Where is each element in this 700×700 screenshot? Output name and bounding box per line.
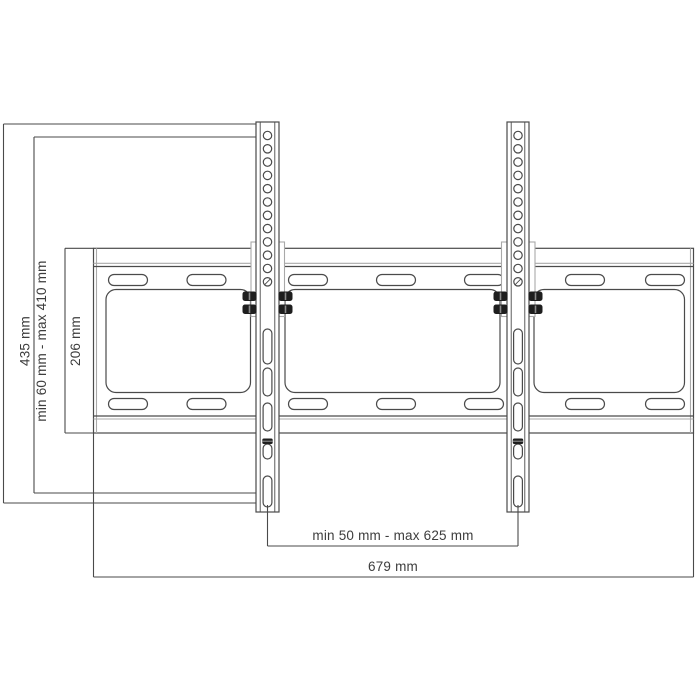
rail-hole (514, 131, 522, 139)
rail-hole (263, 224, 271, 232)
rail-hole (514, 238, 522, 246)
rail-slot (514, 444, 523, 459)
plate-slot (465, 275, 504, 286)
bracket-height-range-label: min 60 mm - max 410 mm (34, 260, 49, 421)
dimension-overall-width: 679 mm (94, 433, 694, 577)
rail-hole (263, 185, 271, 193)
rail-slot (514, 476, 523, 507)
plate-slot (187, 275, 226, 286)
plate-height-label: 206 mm (68, 316, 83, 366)
rail-hole (263, 145, 271, 153)
rail-slot (514, 403, 523, 431)
plate-slot (377, 275, 416, 286)
plate-slot (289, 275, 328, 286)
plate-slot (566, 275, 605, 286)
plate-slot (109, 275, 148, 286)
rail-hole (514, 251, 522, 259)
plate-slot (646, 275, 685, 286)
rail-slot (514, 368, 523, 396)
plate-slot (109, 399, 148, 410)
plate-slot (289, 399, 328, 410)
plate-slot (465, 399, 504, 410)
plate-slot (566, 399, 605, 410)
rail-slot (263, 329, 272, 364)
rail-hole (263, 171, 271, 179)
rail-hole (514, 211, 522, 219)
rail-hole (263, 238, 271, 246)
plate-slot (646, 399, 685, 410)
rail-hole (263, 264, 271, 272)
rail-hole (514, 171, 522, 179)
rail-hole (514, 264, 522, 272)
rail-hole (514, 185, 522, 193)
dimension-rail-spacing-range: min 50 mm - max 625 mm (268, 505, 519, 546)
overall-height-label: 435 mm (18, 316, 33, 366)
plate-slot (377, 399, 416, 410)
technical-drawing-canvas: 435 mm min 60 mm - max 410 mm 206 mm min… (0, 0, 700, 700)
dimension-plate-height: 206 mm (65, 248, 94, 433)
plate-slot (187, 399, 226, 410)
wall-plate (94, 248, 694, 433)
overall-width-label: 679 mm (368, 559, 418, 574)
rail-slot (263, 444, 272, 459)
rail-hole (514, 145, 522, 153)
rail-slot (514, 329, 523, 364)
rail-hole (263, 251, 271, 259)
rail-hole (263, 198, 271, 206)
tv-wall-mount-dimension-diagram: 435 mm min 60 mm - max 410 mm 206 mm min… (0, 0, 700, 700)
rail-hole (263, 211, 271, 219)
rail-hole (263, 131, 271, 139)
rail-slot (263, 476, 272, 507)
rail-hole (514, 198, 522, 206)
rail-hole (263, 158, 271, 166)
rail-hole (514, 158, 522, 166)
rail-hole (514, 224, 522, 232)
rail-slot (263, 403, 272, 431)
rail-slot (263, 368, 272, 396)
rail-spacing-range-label: min 50 mm - max 625 mm (312, 528, 473, 543)
